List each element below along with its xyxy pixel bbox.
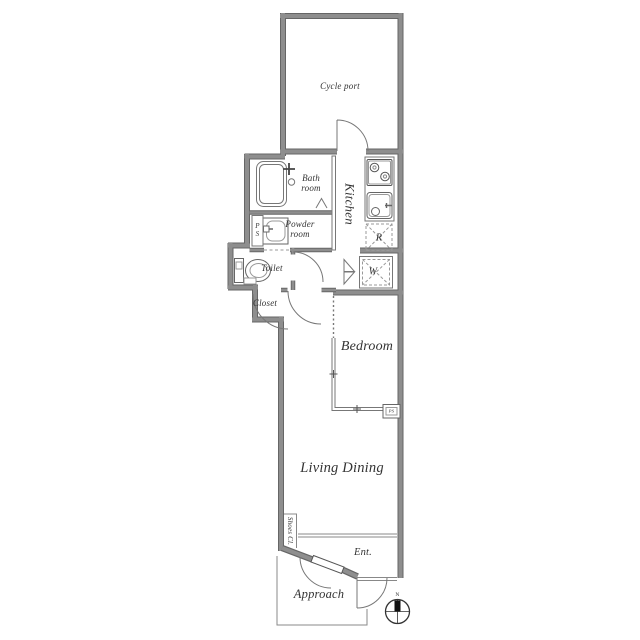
toilet-door bbox=[293, 252, 323, 282]
toilet-label: Toilet bbox=[261, 263, 282, 273]
north-compass-icon bbox=[386, 600, 410, 624]
front-door-leaf bbox=[311, 556, 344, 574]
closet-label: Closet bbox=[253, 298, 277, 308]
pipe-space-lower-label: PS bbox=[389, 408, 394, 413]
bath-room-label: Bath room bbox=[301, 173, 320, 193]
approach-label: Approach bbox=[294, 587, 344, 601]
outer-walls bbox=[228, 13, 403, 578]
kitchen-label: Kitchen bbox=[342, 183, 357, 225]
shoes-closet-label: Shoes Cl. bbox=[285, 517, 293, 545]
pipe-space-upper-label: P S bbox=[255, 223, 259, 239]
compass-north-label: N bbox=[395, 591, 399, 597]
bath-door-mark bbox=[316, 199, 327, 209]
kitchen-sink bbox=[367, 193, 392, 219]
cycle-port-door bbox=[337, 120, 368, 151]
refrigerator-label: R bbox=[376, 232, 382, 243]
floor-plan: Cycle port Bath room Powder room P S Toi… bbox=[0, 0, 640, 640]
bedroom-label: Bedroom bbox=[341, 339, 393, 355]
washer-label: W bbox=[369, 266, 378, 277]
powder-room-label: Powder room bbox=[285, 219, 314, 239]
floor-plan-drawing bbox=[0, 0, 640, 640]
kitchen-partition-wall bbox=[332, 156, 336, 250]
entrance-label: Ent. bbox=[354, 547, 372, 559]
bath-drain-icon bbox=[288, 179, 294, 185]
vanity-sink bbox=[263, 218, 288, 244]
entrance-side-door bbox=[357, 578, 387, 608]
living-dining-door bbox=[288, 291, 321, 324]
stove bbox=[367, 160, 392, 186]
washer-bifold-door bbox=[344, 260, 355, 285]
cycle-port-label: Cycle port bbox=[320, 81, 360, 91]
living-dining-label: Living Dining bbox=[300, 460, 384, 476]
bathtub bbox=[257, 162, 287, 207]
